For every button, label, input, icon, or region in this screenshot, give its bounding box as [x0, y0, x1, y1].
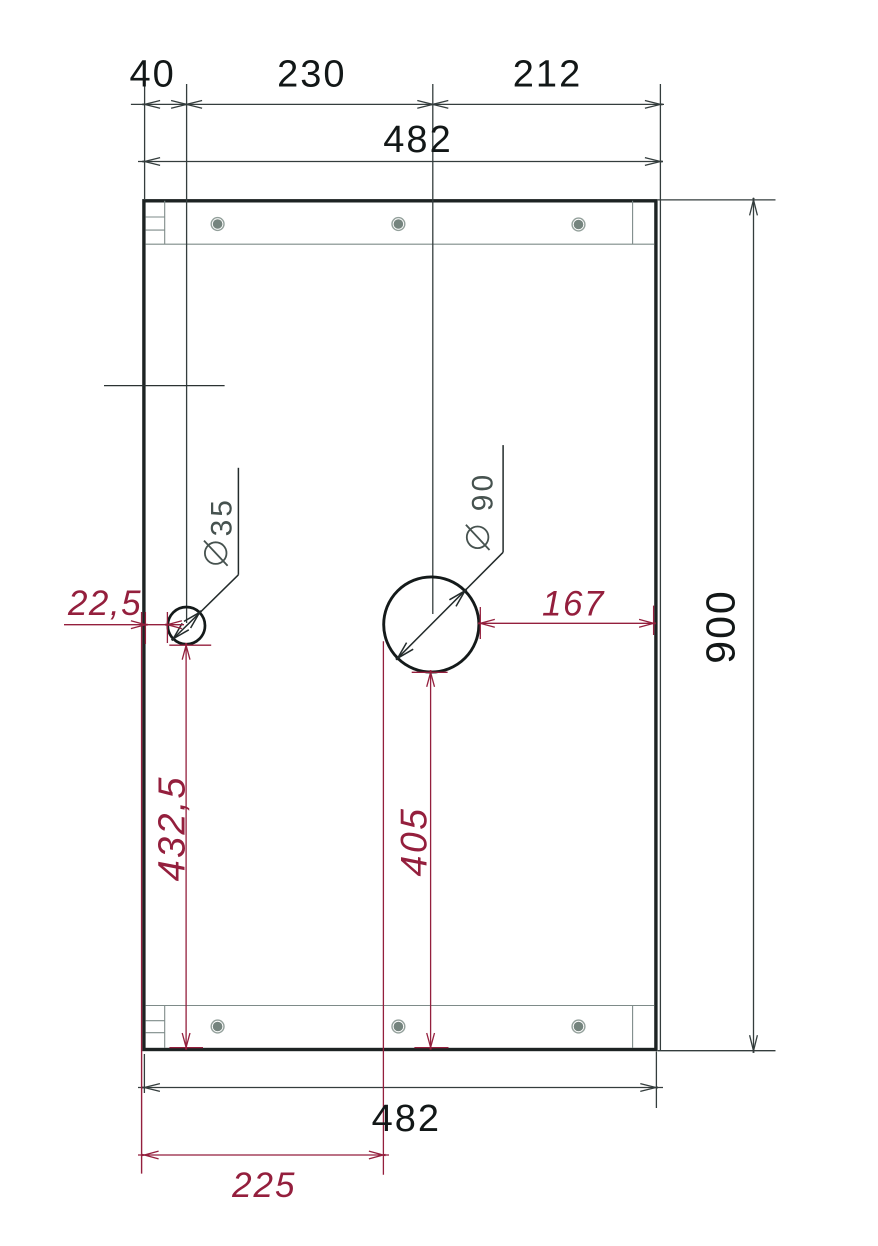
- svg-text:405: 405: [393, 806, 435, 876]
- svg-text:22,5: 22,5: [67, 584, 142, 623]
- svg-text:230: 230: [277, 54, 346, 96]
- svg-text:900: 900: [698, 589, 744, 663]
- svg-text:225: 225: [231, 1166, 296, 1205]
- svg-text:35: 35: [206, 497, 239, 536]
- svg-text:167: 167: [542, 584, 605, 623]
- svg-text:432,5: 432,5: [152, 775, 194, 881]
- svg-text:482: 482: [383, 119, 452, 161]
- svg-text:212: 212: [513, 54, 582, 96]
- svg-text:40: 40: [130, 53, 176, 95]
- svg-text:90: 90: [466, 472, 499, 511]
- svg-text:482: 482: [372, 1098, 441, 1140]
